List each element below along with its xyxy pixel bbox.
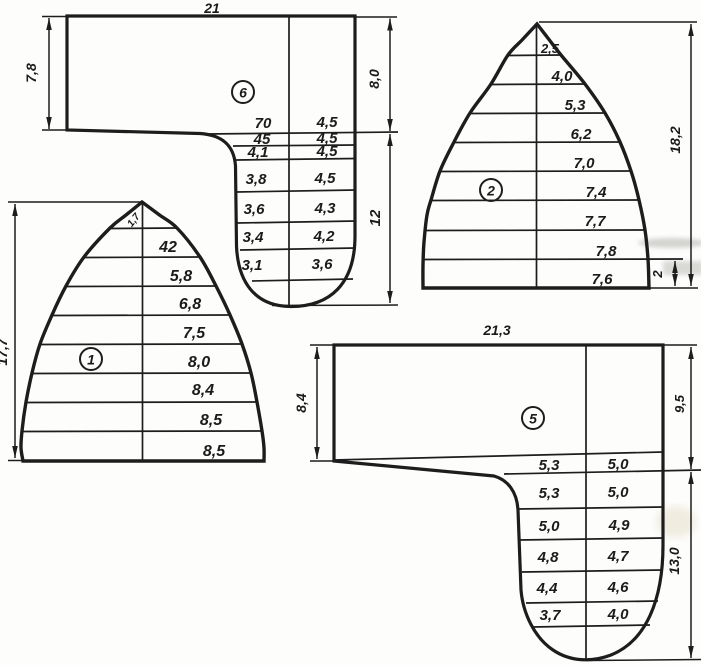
svg-text:17,7: 17,7 xyxy=(0,337,10,365)
svg-text:8,4: 8,4 xyxy=(293,393,309,413)
svg-text:5,0: 5,0 xyxy=(608,456,630,473)
svg-text:4,2: 4,2 xyxy=(313,228,336,245)
svg-text:4,5: 4,5 xyxy=(316,114,339,131)
svg-text:4,5: 4,5 xyxy=(314,170,337,187)
svg-text:4,6: 4,6 xyxy=(607,579,630,596)
svg-text:6,2: 6,2 xyxy=(571,126,593,143)
svg-text:1: 1 xyxy=(87,352,95,368)
svg-text:3,7: 3,7 xyxy=(540,607,562,624)
svg-text:2: 2 xyxy=(486,183,495,199)
svg-text:4,4: 4,4 xyxy=(536,580,559,597)
svg-text:5,0: 5,0 xyxy=(608,484,630,501)
svg-text:5,0: 5,0 xyxy=(539,518,561,535)
svg-text:5,8: 5,8 xyxy=(170,268,192,285)
svg-text:42: 42 xyxy=(158,239,177,256)
svg-text:3,6: 3,6 xyxy=(312,256,334,273)
svg-text:8,4: 8,4 xyxy=(192,382,214,399)
svg-text:3,6: 3,6 xyxy=(244,201,266,218)
svg-text:12: 12 xyxy=(367,209,384,226)
svg-text:6: 6 xyxy=(239,85,247,101)
svg-text:9,5: 9,5 xyxy=(672,394,687,413)
svg-text:4,7: 4,7 xyxy=(607,548,630,565)
svg-text:7,8: 7,8 xyxy=(596,243,618,260)
svg-text:8,5: 8,5 xyxy=(203,443,226,460)
svg-text:3,8: 3,8 xyxy=(246,171,268,188)
svg-text:21: 21 xyxy=(203,0,220,16)
svg-text:3,4: 3,4 xyxy=(243,229,265,246)
svg-text:5,3: 5,3 xyxy=(539,485,561,502)
svg-text:13,0: 13,0 xyxy=(666,547,682,574)
svg-text:7,6: 7,6 xyxy=(592,271,614,288)
svg-text:6,8: 6,8 xyxy=(179,296,201,313)
svg-text:21,3: 21,3 xyxy=(482,322,510,338)
svg-text:18,2: 18,2 xyxy=(667,126,683,153)
svg-text:4,0: 4,0 xyxy=(607,606,630,623)
svg-text:5: 5 xyxy=(529,411,537,427)
svg-text:8,0: 8,0 xyxy=(188,354,210,371)
svg-text:8,0: 8,0 xyxy=(366,69,382,89)
svg-text:2: 2 xyxy=(650,270,665,279)
svg-text:4,5: 4,5 xyxy=(316,143,339,160)
svg-text:7,7: 7,7 xyxy=(585,213,607,230)
svg-text:5,3: 5,3 xyxy=(565,97,587,114)
svg-text:4,8: 4,8 xyxy=(537,549,560,566)
svg-text:7,5: 7,5 xyxy=(183,325,206,342)
svg-text:70: 70 xyxy=(255,115,272,132)
svg-text:5,3: 5,3 xyxy=(539,457,561,474)
svg-text:2,5: 2,5 xyxy=(540,41,560,56)
svg-text:4,1: 4,1 xyxy=(247,144,269,161)
svg-text:7,8: 7,8 xyxy=(23,63,39,83)
svg-text:3,1: 3,1 xyxy=(242,257,263,274)
svg-text:7,4: 7,4 xyxy=(586,184,608,201)
svg-text:4,0: 4,0 xyxy=(551,68,574,85)
svg-text:7,0: 7,0 xyxy=(574,155,596,172)
svg-text:8,5: 8,5 xyxy=(200,412,223,429)
svg-text:4,3: 4,3 xyxy=(314,200,337,217)
svg-text:4,9: 4,9 xyxy=(608,517,631,534)
